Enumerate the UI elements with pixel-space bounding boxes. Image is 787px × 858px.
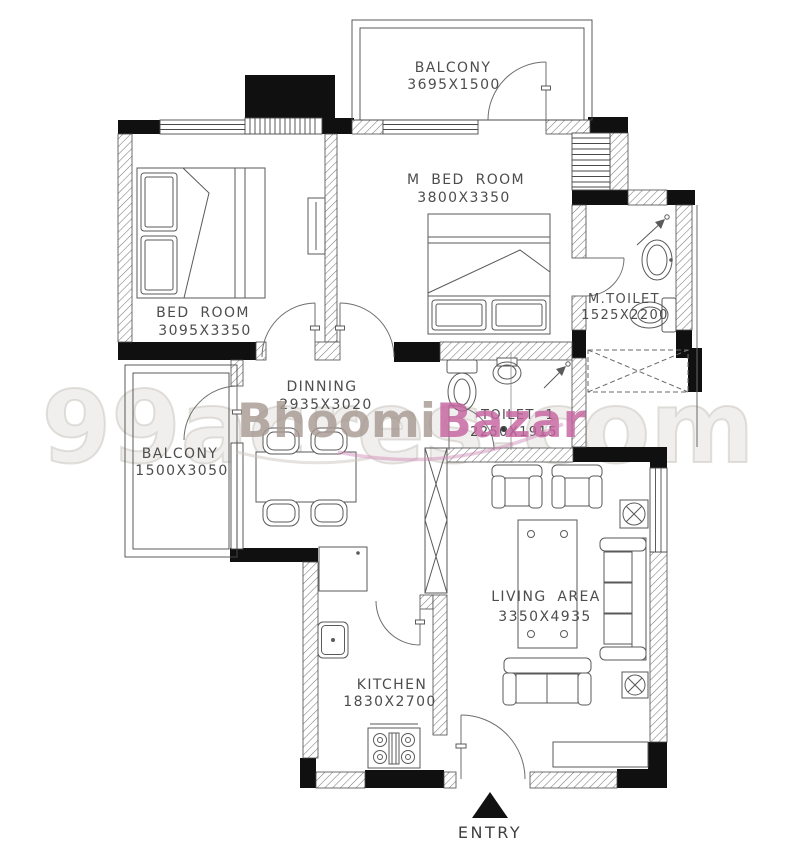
label-living-area-name: LIVING AREA <box>491 589 601 605</box>
m-toilet-door <box>586 258 624 296</box>
bedroom-window <box>160 120 250 134</box>
label-kitchen-name: KITCHEN <box>357 677 427 693</box>
label-m-bed-room-dim: 3800X3350 <box>417 190 510 206</box>
entry-label: ENTRY <box>458 823 522 842</box>
living-window <box>650 468 667 552</box>
armchair <box>492 465 542 508</box>
label-living-area-dim: 3350X4935 <box>498 609 591 625</box>
label-m-toilet-dim: 1525X2200 <box>581 308 669 323</box>
sofa-two-seater <box>503 658 591 705</box>
brand-watermark-text: BhoomiBazar <box>237 394 587 449</box>
mbedroom-balcony-window <box>383 120 478 134</box>
louver-window <box>245 118 322 134</box>
label-bed-room-dim: 3095X3350 <box>158 323 251 339</box>
entry-arrow-icon <box>472 792 508 818</box>
label-balcony-top-name: BALCONY <box>415 60 492 76</box>
m-bed-room-door <box>336 303 395 357</box>
corner-unit-symbol <box>622 672 648 698</box>
floor-plan-page: 99acres.com 99acres.com <box>0 0 787 858</box>
bed-room-door <box>262 303 320 357</box>
label-dinning-name: DINNING <box>286 379 357 395</box>
floor-plan-canvas: 99acres.com 99acres.com <box>0 0 787 858</box>
brand-part-bazar: Bazar <box>436 394 587 449</box>
coffee-table <box>518 520 577 648</box>
kitchen-door <box>376 601 425 645</box>
refrigerator <box>319 547 367 591</box>
entry-marker: ENTRY <box>458 792 522 842</box>
stove-hob <box>368 724 420 768</box>
label-m-bed-room-name: M BED ROOM <box>407 172 525 188</box>
label-balcony-left-dim: 1500X3050 <box>135 463 228 479</box>
kitchen-fixtures <box>318 547 420 768</box>
m-bed-room-furniture <box>428 214 550 334</box>
corner-unit-symbol <box>620 500 648 528</box>
dining-chair <box>263 500 299 526</box>
label-kitchen-dim: 1830X2700 <box>343 694 436 710</box>
dining-chair <box>311 500 347 526</box>
kitchen-sink <box>318 622 348 658</box>
label-balcony-left-name: BALCONY <box>142 446 219 462</box>
entry-door <box>456 715 525 779</box>
label-bed-room-name: BED ROOM <box>156 305 250 321</box>
armchair <box>552 465 602 508</box>
sofa-three-seater <box>600 538 646 660</box>
label-balcony-top-dim: 3695X1500 <box>407 77 500 93</box>
staircase <box>572 133 610 190</box>
label-m-toilet-name: M.TOILET <box>588 292 660 307</box>
console-unit <box>553 742 648 767</box>
bed-room-furniture <box>137 168 325 298</box>
brand-part-bhoomi: Bhoomi <box>237 394 436 449</box>
wash-basin <box>642 240 673 280</box>
